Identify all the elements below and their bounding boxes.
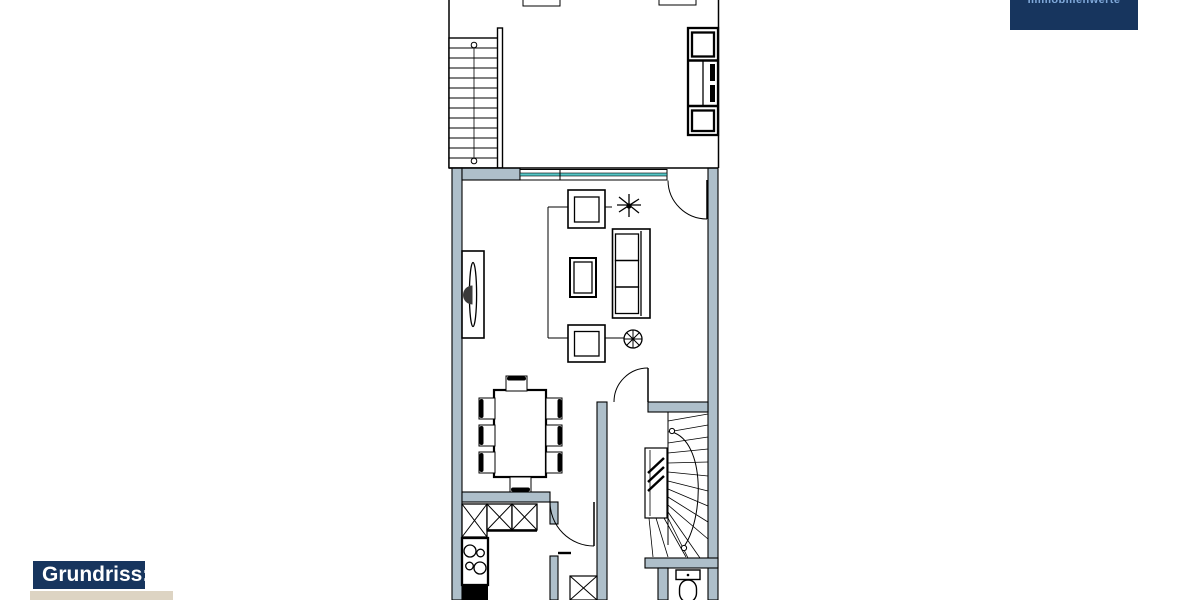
exterior-walls — [449, 168, 719, 600]
window-front — [520, 170, 667, 181]
dining-table — [494, 390, 546, 477]
stair-walk-line — [672, 432, 698, 548]
caption-label: Grundriss: — [33, 563, 149, 587]
tv-sideboard — [462, 251, 484, 338]
plant-top — [617, 194, 641, 217]
toilet — [676, 570, 700, 600]
straight-staircase — [449, 28, 503, 168]
shower-room — [558, 553, 597, 600]
armchair-bottom — [568, 325, 605, 362]
company-logo-text: Immobilienwerte — [1028, 0, 1121, 6]
floorplan-drawing — [440, 0, 730, 600]
plant-bottom — [624, 330, 642, 348]
stove — [462, 538, 488, 585]
screenshot-canvas: Immobilienwerte Grundriss: — [0, 0, 1200, 600]
hall-door — [614, 368, 648, 402]
kitchen-counter — [462, 504, 537, 537]
outdoor-kitchen-unit — [688, 28, 718, 135]
coffee-table — [570, 258, 596, 297]
kitchen-sink-block — [462, 586, 488, 600]
armchair-top — [568, 190, 605, 228]
winder-staircase — [645, 412, 708, 558]
entrance-door — [668, 180, 707, 219]
caption-underlay-bar — [30, 591, 173, 600]
caption-badge: Grundriss: — [33, 561, 145, 589]
stair-railing — [498, 28, 503, 168]
dining-table-group — [479, 376, 562, 492]
company-logo: Immobilienwerte — [1010, 0, 1138, 30]
sofa — [613, 229, 651, 318]
